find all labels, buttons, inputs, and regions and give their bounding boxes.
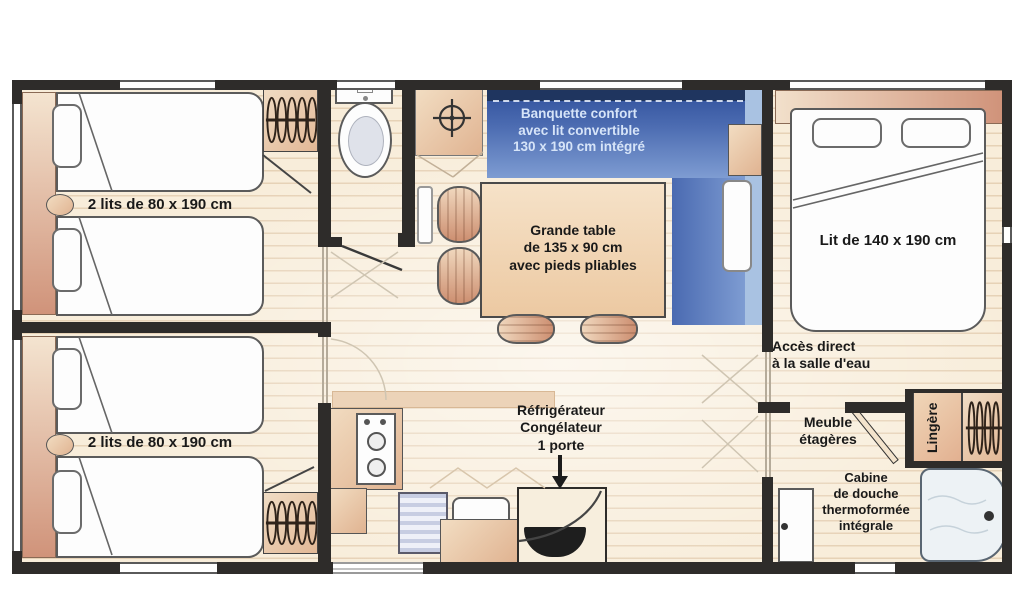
window	[540, 80, 682, 90]
flush-dot	[363, 96, 368, 101]
bedroom-left-bottom-label: 2 lits de 80 x 190 cm	[60, 434, 260, 453]
stove-icon	[356, 413, 396, 485]
window	[337, 80, 395, 90]
shower-drain-icon	[984, 511, 994, 521]
interior-wall	[12, 322, 318, 333]
interior-wall	[318, 80, 331, 247]
single-bed	[56, 92, 264, 192]
cabinet-top	[415, 88, 483, 156]
linen-cabinet-label: Lingère	[924, 396, 940, 460]
wall	[217, 562, 333, 574]
chair	[437, 247, 482, 305]
wardrobe	[263, 492, 318, 554]
door-frame	[765, 352, 771, 402]
pillow	[52, 470, 82, 534]
arrow-down-head-icon	[552, 476, 568, 489]
interior-wall	[762, 477, 773, 568]
interior-wall	[318, 403, 331, 568]
chair	[497, 314, 555, 344]
corner-shelf	[728, 124, 762, 176]
door-frame	[765, 413, 771, 477]
interior-wall	[318, 237, 342, 247]
door-handle-icon	[781, 523, 788, 530]
single-bed	[56, 456, 264, 558]
hanger-rail-icon	[264, 89, 317, 151]
wall	[12, 80, 22, 104]
kitchen-cabinet	[440, 519, 518, 563]
chair	[437, 186, 482, 243]
interior-wall	[318, 322, 331, 337]
window	[120, 562, 217, 574]
wall	[1002, 80, 1012, 227]
interior-wall	[905, 461, 1006, 468]
bedroom-left-top-label: 2 lits de 80 x 190 cm	[60, 196, 260, 215]
kitchen-cabinet	[327, 488, 367, 534]
hanger-rail-icon	[264, 493, 317, 553]
window	[120, 80, 215, 90]
floor-plan: 2 lits de 80 x 190 cm 2 lits de 80 x 190…	[0, 0, 1024, 598]
window	[12, 104, 22, 310]
pillow	[812, 118, 882, 148]
side-shelf	[722, 180, 752, 272]
banquette-stitch-line	[493, 100, 743, 102]
wardrobe	[962, 392, 1006, 463]
stove-knob	[380, 419, 386, 425]
wall	[12, 80, 120, 90]
door-frame	[322, 337, 328, 403]
toilet-bowl-inner	[348, 116, 384, 166]
pillow	[52, 104, 82, 168]
wall	[682, 80, 790, 90]
window	[790, 80, 985, 90]
single-bed	[56, 336, 264, 434]
fridge-label: Réfrigérateur Congélateur 1 porte	[495, 402, 627, 454]
chair	[580, 314, 638, 344]
wall	[12, 551, 22, 574]
door-frame	[322, 247, 328, 322]
table-label: Grande table de 135 x 90 cm avec pieds p…	[480, 222, 666, 274]
double-bed-label: Lit de 140 x 190 cm	[790, 232, 986, 251]
wall	[895, 562, 1012, 574]
stove-knob	[364, 419, 370, 425]
interior-wall	[905, 389, 1006, 393]
entrance-door	[333, 562, 423, 574]
interior-wall	[905, 392, 913, 467]
single-bed	[56, 216, 264, 316]
wardrobe	[263, 88, 318, 152]
window	[855, 562, 895, 574]
window	[12, 340, 22, 551]
wall	[12, 562, 120, 574]
pillow	[52, 228, 82, 292]
wall	[423, 562, 855, 574]
wall	[395, 80, 540, 90]
interior-wall	[845, 402, 910, 413]
folded-leaf	[417, 186, 433, 244]
interior-wall	[758, 402, 790, 413]
hanger-rail-icon	[963, 393, 1005, 462]
interior-wall	[762, 80, 773, 352]
window	[1002, 227, 1012, 243]
access-label: Accès direct à la salle d'eau	[772, 338, 904, 373]
pillow	[901, 118, 971, 148]
shower-cabin-label: Cabine de douche thermoformée intégrale	[810, 470, 922, 534]
banquette-label: Banquette confort avec lit convertible 1…	[489, 106, 669, 156]
wall	[1002, 243, 1012, 574]
pillow	[52, 348, 82, 410]
arrow-down-icon	[558, 455, 562, 477]
burner-icon	[367, 432, 386, 451]
interior-wall	[402, 80, 415, 245]
burner-icon	[367, 458, 386, 477]
